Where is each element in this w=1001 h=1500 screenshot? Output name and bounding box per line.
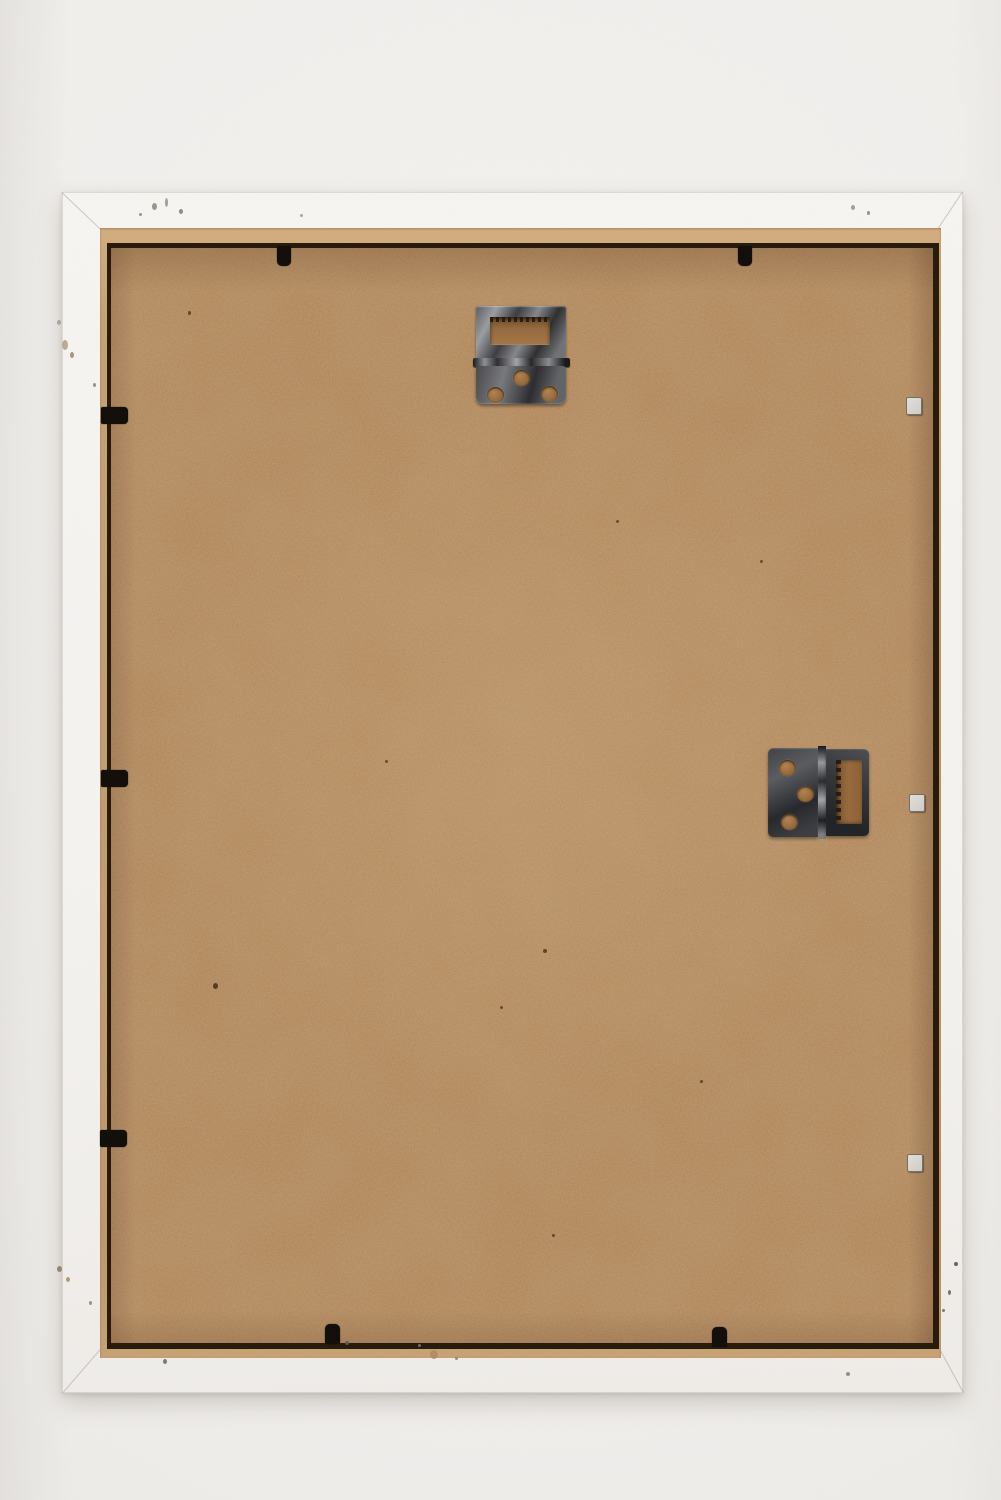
hanger-slot-opening — [836, 760, 862, 824]
hanger-slot-plate — [476, 306, 566, 358]
side-hinge-hanger — [768, 746, 869, 839]
hanger-screw-plate — [768, 748, 818, 837]
hanger-slot-plate — [826, 749, 869, 836]
photo-frame-back-scene: Back of a white wooden picture frame — [0, 0, 1001, 1500]
screw-hole — [513, 370, 530, 386]
screw-hole — [797, 786, 814, 802]
screw-hole — [779, 760, 796, 776]
hanger-slot-opening — [490, 317, 550, 345]
serrated-edge — [836, 760, 841, 824]
miter-joint-top-right — [938, 191, 963, 228]
hanger-screw-plate — [476, 366, 566, 404]
screw-hole — [541, 386, 558, 402]
hinge-knuckle — [818, 746, 826, 839]
miter-joint-bottom-right — [939, 1348, 964, 1393]
screw-hole — [781, 814, 798, 830]
miter-joint-top-left — [61, 192, 100, 229]
screw-hole — [487, 387, 504, 403]
top-hinge-hanger — [473, 303, 570, 404]
serrated-edge — [490, 317, 550, 322]
miter-joint-bottom-left — [62, 1348, 101, 1393]
